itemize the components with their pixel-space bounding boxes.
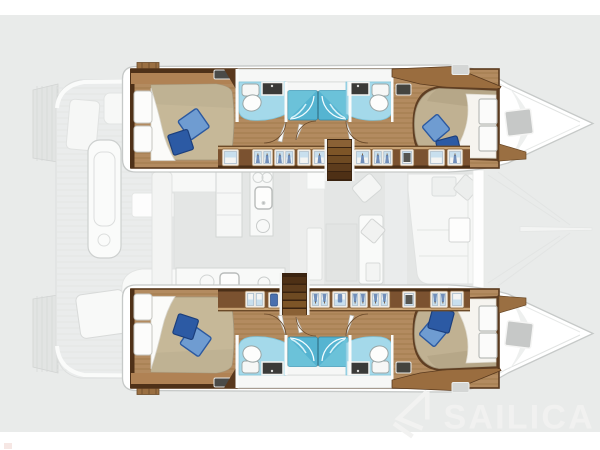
svg-text:SAILICA: SAILICA	[444, 399, 595, 437]
